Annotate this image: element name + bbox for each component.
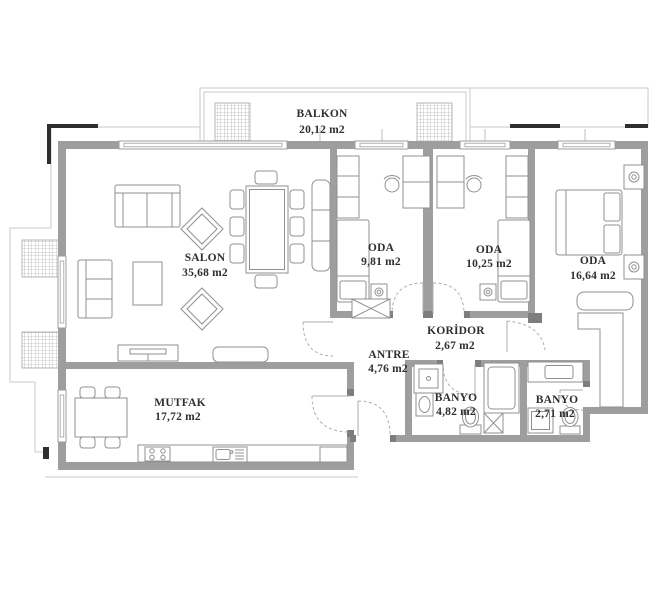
washbasin-icon <box>416 393 433 416</box>
rug-diamond <box>181 288 223 330</box>
room-label-banyo1: BANYO <box>435 392 478 404</box>
bench-console <box>213 347 268 362</box>
window-salon-top <box>119 141 287 149</box>
room-area-salon: 35,68 m2 <box>182 267 228 279</box>
room-area-oda3: 16,64 m2 <box>570 270 616 282</box>
facade-wall-stub <box>43 447 49 459</box>
facade-wall-stub <box>47 124 98 128</box>
window-oda3-top <box>558 141 615 149</box>
double-bed <box>556 190 622 255</box>
window-oda1-top <box>355 141 408 149</box>
vanity-counter <box>528 362 583 382</box>
room-label-koridor: KORİDOR <box>427 323 485 337</box>
window-oda2-top <box>460 141 510 149</box>
oda1-furniture <box>337 156 430 302</box>
sink-icon <box>213 447 247 462</box>
door-entrance <box>358 401 390 436</box>
room-area-banyo2: 2,71 m2 <box>535 408 575 420</box>
nightstand <box>371 284 387 300</box>
door-salon <box>303 322 333 356</box>
nightstand <box>480 284 496 300</box>
nightstand <box>624 255 644 279</box>
door-oda3 <box>507 321 545 352</box>
shower-tray <box>414 364 443 393</box>
wardrobe <box>337 156 359 218</box>
room-area-banyo1: 4,82 m2 <box>436 406 476 418</box>
room-label-oda3: ODA <box>580 255 607 267</box>
wardrobe <box>506 156 528 218</box>
room-area-koridor: 2,67 m2 <box>435 340 475 352</box>
sideboard <box>312 180 330 271</box>
floor-plan-drawing: BALKON 20,12 m2 SALON 35,68 m2 ODA 9,81 … <box>0 0 660 593</box>
room-area-oda1: 9,81 m2 <box>361 256 401 268</box>
kitchen-table <box>75 398 127 437</box>
room-label-mutfak: MUTFAK <box>154 397 205 409</box>
room-label-salon: SALON <box>185 252 226 264</box>
floor-plan-canvas: BALKON 20,12 m2 SALON 35,68 m2 ODA 9,81 … <box>0 0 660 593</box>
desk-chair <box>466 176 482 192</box>
room-label-antre: ANTRE <box>368 349 409 361</box>
stove-icon <box>145 447 170 461</box>
room-area-oda2: 10,25 m2 <box>466 258 512 270</box>
antre-furniture <box>352 299 390 318</box>
bench <box>577 292 633 310</box>
door-oda2 <box>433 283 464 314</box>
kitchen-furniture <box>75 387 347 462</box>
desk <box>403 156 430 208</box>
door-kitchen <box>312 396 350 432</box>
room-area-mutfak: 17,72 m2 <box>155 411 201 423</box>
sofa-l-shape <box>78 260 112 318</box>
built-in-closet <box>352 299 390 318</box>
room-label-oda2: ODA <box>476 244 503 256</box>
desk-chair <box>384 176 400 192</box>
room-area-balkon: 20,12 m2 <box>299 124 345 136</box>
counter-cabinet <box>320 447 347 462</box>
room-label-oda1: ODA <box>368 242 395 254</box>
coffee-table <box>133 262 162 305</box>
room-area-antre: 4,76 m2 <box>368 363 408 375</box>
nightstand <box>624 165 644 189</box>
dining-table <box>246 186 288 273</box>
rug-diamond <box>181 208 223 250</box>
door-oda1 <box>392 283 423 314</box>
facade-wall-stub <box>625 124 648 128</box>
sofa-three-seat <box>115 185 180 227</box>
tv-unit <box>118 345 178 361</box>
oda2-furniture <box>437 156 530 302</box>
room-label-balkon: BALKON <box>296 108 348 120</box>
shaft-box <box>484 413 503 433</box>
window-salon-left <box>58 256 66 328</box>
shower-cabin <box>484 363 519 413</box>
window-kitchen-left <box>58 390 66 442</box>
facade-wall-stub <box>510 124 560 128</box>
door-banyo1 <box>443 364 475 395</box>
desk <box>437 156 464 208</box>
facade-wall-stub <box>47 128 51 164</box>
room-label-banyo2: BANYO <box>536 394 579 406</box>
